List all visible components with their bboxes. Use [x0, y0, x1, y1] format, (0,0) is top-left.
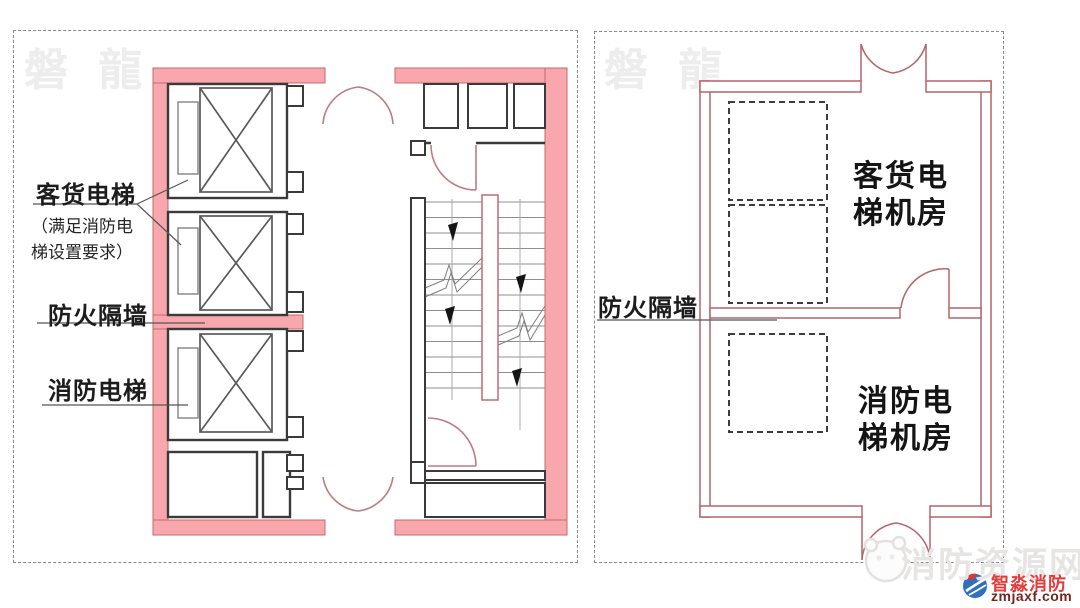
elevator-cars — [200, 88, 272, 432]
machine-room-wall-top-right — [926, 81, 991, 92]
vent-shaft-3 — [514, 84, 545, 128]
site-watermark-mascot-icon — [865, 537, 906, 581]
top-double-door-arc-left — [323, 87, 358, 124]
shaft-door-jambs — [287, 86, 303, 489]
vent-shafts — [424, 84, 545, 128]
stair-center-divider-wall — [482, 195, 498, 400]
stair-bottom-room — [425, 483, 545, 517]
lobby-door-arc — [431, 145, 476, 190]
vent-shaft-1 — [424, 84, 458, 128]
freight-elevator-label: 客货电梯 — [36, 175, 136, 210]
pink-wall-left — [153, 68, 168, 535]
top-double-door-arc-right — [358, 87, 393, 124]
jamb — [287, 455, 303, 471]
pink-wall-top-left-segment — [153, 68, 325, 83]
jamb — [287, 214, 303, 234]
stair-left-wall — [411, 198, 425, 462]
top-door-arc-left — [861, 44, 893, 73]
mascot-ear-left — [865, 539, 877, 551]
jamb — [287, 477, 303, 489]
freight-machine-room-line2: 梯机房 — [853, 195, 949, 232]
shaft-opening-2 — [729, 205, 827, 303]
partition-door-arc — [901, 269, 949, 308]
bottom-room-right — [263, 452, 290, 517]
machine-room-fire-partition — [710, 308, 900, 318]
stair-bottom-jamb — [411, 462, 425, 483]
pink-wall-top-right-segment — [395, 68, 567, 83]
fire-machine-room-label: 消防电 梯机房 — [858, 383, 954, 457]
machine-room-wall-top-left — [700, 81, 861, 92]
freight-machine-room-line1: 客货电 — [853, 158, 949, 195]
elevator-shafts — [168, 84, 303, 517]
fire-partition-wall-label-right: 防火隔墙 — [598, 288, 698, 323]
counterweight-3 — [178, 348, 198, 418]
jamb — [287, 172, 303, 192]
right-plan-doors — [861, 44, 949, 560]
vent-shaft-2 — [468, 84, 507, 128]
counterweight-1 — [178, 102, 198, 174]
mascot-eye-left — [877, 556, 882, 561]
pink-wall-bottom-right-segment — [395, 520, 567, 535]
machine-room-wall-right — [981, 81, 991, 517]
fire-partition-wall-band — [153, 315, 303, 329]
lobby-wall-jamb — [411, 141, 425, 155]
jamb — [287, 417, 303, 437]
shaft-floor-openings — [729, 102, 827, 432]
freight-elevator-note-line1: （满足消防电 — [31, 212, 133, 237]
machine-room-fire-partition-stub — [949, 308, 981, 318]
machine-room-wall-bottom-left — [700, 506, 862, 517]
top-door-arc-right — [893, 44, 926, 73]
pink-wall-bottom-left-segment — [153, 520, 325, 535]
bottom-double-door-arc-right — [358, 477, 393, 511]
freight-machine-room-label: 客货电 梯机房 — [853, 158, 949, 232]
jamb — [287, 331, 303, 351]
floor-plan-canvas — [0, 0, 1080, 608]
fire-partition-wall-label-left: 防火隔墙 — [48, 296, 148, 331]
fire-elevator-label: 消防电梯 — [48, 371, 148, 406]
machine-room-wall-left — [700, 81, 710, 517]
jamb — [287, 86, 303, 106]
counterweight-2 — [178, 228, 198, 294]
brand-domain-text: zmjaxf.com — [991, 588, 1072, 604]
fire-machine-room-line2: 梯机房 — [858, 420, 954, 457]
stairwell — [411, 195, 545, 517]
shaft-opening-3 — [729, 334, 827, 432]
stair-bottom-corridor-wall — [425, 471, 545, 480]
freight-elevator-note-line2: 梯设置要求） — [31, 238, 133, 263]
stair-exit-door-arc — [428, 418, 476, 466]
top-door-jambs — [861, 44, 926, 81]
elevator-counterweights — [178, 102, 198, 418]
mascot-eye-right — [890, 555, 895, 560]
jamb — [287, 292, 303, 312]
fire-machine-room-line1: 消防电 — [858, 383, 954, 420]
stair-treads-right-flight — [498, 199, 545, 401]
bottom-double-door-arc-left — [323, 477, 358, 511]
pink-wall-right — [545, 68, 567, 535]
bottom-room-left — [168, 452, 257, 517]
shaft-opening-1 — [729, 102, 827, 200]
machine-room-wall-bottom-right — [930, 506, 991, 517]
